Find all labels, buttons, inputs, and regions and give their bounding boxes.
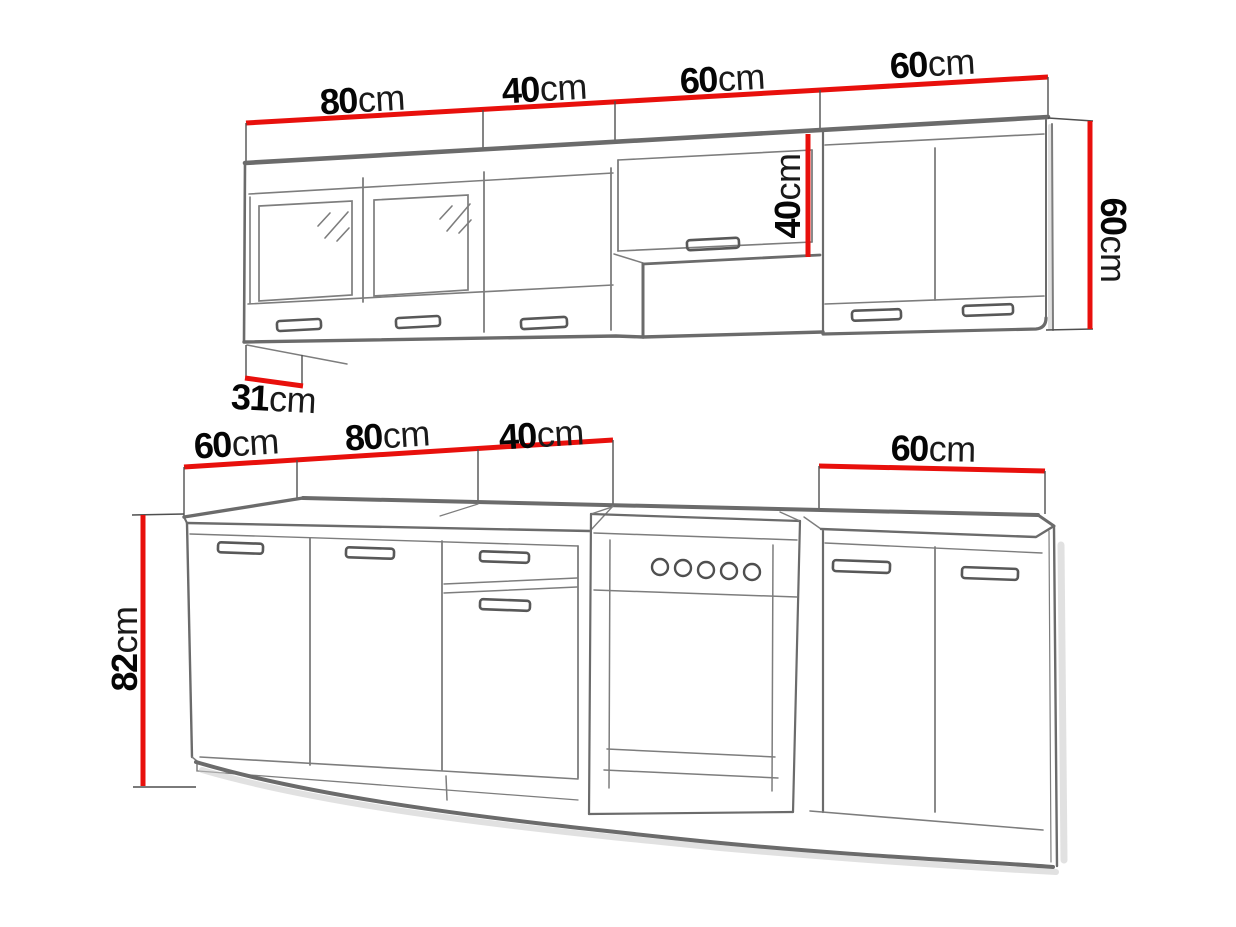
label-base-depth-60: 60cm	[192, 420, 279, 466]
worktop-end-edge-right	[804, 517, 821, 529]
side-panel-edge	[1052, 124, 1053, 330]
handle-base-40-door	[480, 599, 530, 611]
door-top-line	[825, 134, 1044, 145]
label-base-width-40: 40cm	[497, 411, 584, 457]
handle-base-80-right	[346, 547, 394, 559]
glass-pane-right	[374, 195, 468, 296]
top-rail-line	[825, 543, 1042, 553]
control-panel-top	[594, 533, 797, 540]
glass-pane-left	[259, 201, 352, 301]
oven-drawer-line	[604, 770, 778, 778]
worktop-left-receding-edge	[184, 498, 303, 517]
right-side-edge	[1054, 527, 1057, 866]
handle-base-40-drawer	[480, 551, 529, 563]
cooker-inner-right	[772, 545, 773, 791]
knob-icon	[698, 562, 714, 578]
plinth-gap-tick	[446, 776, 447, 800]
wall-cabinet-80-glass	[244, 163, 643, 364]
diagram-canvas: 80cm 40cm 60cm 60cm 40cm 60cm 31cm 60cm …	[0, 0, 1236, 927]
cooker-right-edge	[793, 521, 800, 812]
handle-base-60-left	[833, 560, 890, 573]
hood-recess-bottom	[643, 332, 823, 337]
label-wall-depth-31: 31cm	[230, 376, 317, 421]
worktop-end-edge-left	[590, 506, 613, 531]
label-wall-width-40: 40cm	[501, 66, 588, 112]
cooker-left-edge	[589, 514, 591, 814]
handle-wall-60-left	[852, 309, 901, 321]
label-wall-width-60b: 60cm	[889, 41, 976, 87]
label-hood-height-40: 40cm	[767, 153, 808, 238]
base-left-edge	[187, 523, 192, 757]
kitchen-dimension-drawing: 80cm 40cm 60cm 60cm 40cm 60cm 31cm 60cm …	[0, 0, 1236, 927]
control-panel-bottom	[594, 590, 797, 597]
wall-cabinet-60-right	[823, 120, 1053, 334]
right-side-inner-line	[1049, 531, 1051, 862]
glass-reflection-hatches-left	[318, 212, 349, 241]
worktop-front-edge-right	[821, 526, 1054, 537]
wall-row-bottom-edge	[244, 336, 643, 342]
base-cabinet-row	[132, 440, 1064, 872]
cooker	[589, 507, 800, 814]
handle-wall-40	[521, 317, 567, 329]
right-side-shadow	[1061, 545, 1064, 860]
drawer-divider-top	[444, 578, 577, 584]
hood-bottom-edge	[643, 255, 820, 264]
cooker-top-edge	[591, 514, 800, 521]
wall-left-edge	[244, 163, 245, 342]
label-base-height-82: 82cm	[104, 606, 145, 691]
door-top-line	[249, 173, 613, 194]
knob-icon	[721, 563, 737, 579]
wall-cabinet-row	[244, 77, 1093, 386]
knob-icon	[675, 560, 691, 576]
worktop-front-edge-left	[187, 523, 590, 531]
cooker-knobs	[652, 559, 760, 580]
base-cabinet-60-right	[810, 527, 1064, 866]
worktop-right-corner	[1038, 515, 1054, 526]
handle-wall-60-right	[963, 304, 1013, 316]
dimension-labels: 80cm 40cm 60cm 60cm 40cm 60cm 31cm 60cm …	[104, 41, 1134, 692]
handle-hood	[687, 238, 739, 251]
door-bottom-line	[248, 285, 613, 304]
base-cabinet-80-and-40	[187, 523, 578, 800]
hood-bottom-diagonal	[614, 254, 643, 263]
worktop	[184, 498, 1054, 537]
glass-reflection-hatches-right	[440, 204, 471, 233]
label-base-width-80: 80cm	[343, 412, 430, 458]
handle-wall-80-left	[277, 319, 321, 331]
side-panel-bottom-edge	[247, 345, 347, 364]
knob-icon	[652, 559, 668, 575]
cooker-inner-left	[609, 540, 610, 788]
handle-base-60-right	[962, 567, 1018, 580]
label-base-width-60: 60cm	[890, 427, 976, 469]
doors-bottom-line	[810, 811, 1043, 830]
knob-icon	[744, 564, 760, 580]
label-wall-width-60a: 60cm	[679, 56, 766, 102]
drawer-divider-bottom	[444, 587, 577, 593]
worktop-back-edge	[303, 498, 1038, 515]
worktop-seam-80-40	[440, 504, 478, 516]
label-wall-height-60: 60cm	[1093, 197, 1134, 282]
oven-door-bottom	[607, 749, 775, 757]
handle-base-80-left	[218, 542, 263, 554]
handle-wall-80-right	[396, 316, 440, 328]
label-wall-width-80: 80cm	[319, 77, 406, 123]
cooker-bottom-edge	[589, 812, 793, 814]
